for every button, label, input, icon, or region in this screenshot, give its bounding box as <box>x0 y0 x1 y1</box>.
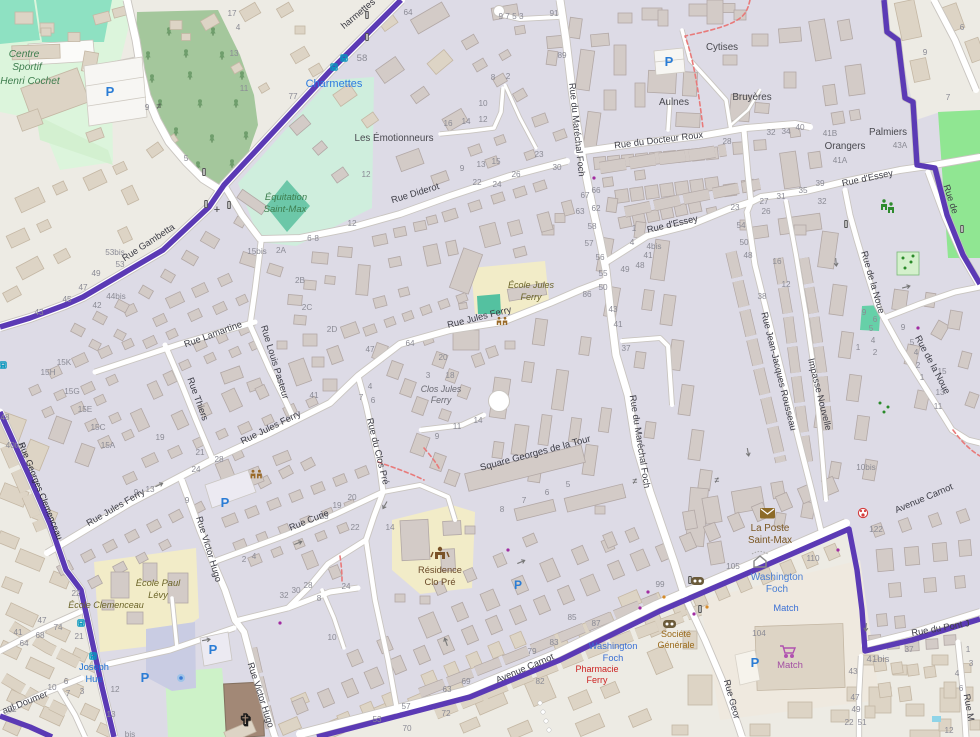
svg-text:23: 23 <box>730 203 740 212</box>
svg-text:43: 43 <box>608 305 618 314</box>
svg-text:15E: 15E <box>78 405 93 414</box>
svg-text:47: 47 <box>78 283 88 292</box>
svg-text:4bis: 4bis <box>646 242 661 251</box>
svg-text:41: 41 <box>309 391 319 400</box>
svg-text:58: 58 <box>357 53 368 64</box>
svg-text:82: 82 <box>535 677 545 686</box>
svg-text:15: 15 <box>491 157 501 166</box>
svg-text:3: 3 <box>426 371 431 380</box>
svg-text:2B: 2B <box>295 276 306 285</box>
svg-text:7: 7 <box>522 496 527 505</box>
svg-text:86: 86 <box>582 290 592 299</box>
svg-text:50: 50 <box>598 283 608 292</box>
svg-text:Société: Société <box>661 629 691 639</box>
svg-text:P: P <box>665 54 674 69</box>
svg-text:École Paul: École Paul <box>136 578 181 588</box>
svg-text:26: 26 <box>511 170 521 179</box>
svg-text:Lévy: Lévy <box>148 590 169 600</box>
svg-text:42: 42 <box>92 301 102 310</box>
svg-text:41bis: 41bis <box>867 654 890 665</box>
svg-text:10: 10 <box>327 633 337 642</box>
svg-text:89: 89 <box>557 51 567 60</box>
svg-text:Foch: Foch <box>603 653 624 663</box>
svg-text:4: 4 <box>955 669 960 678</box>
svg-text:66: 66 <box>591 186 601 195</box>
svg-text:56: 56 <box>595 253 605 262</box>
svg-text:10: 10 <box>47 683 57 692</box>
svg-text:12: 12 <box>110 685 120 694</box>
svg-text:64: 64 <box>405 339 415 348</box>
svg-text:Aulnes: Aulnes <box>659 97 689 108</box>
svg-text:15H: 15H <box>40 368 55 377</box>
svg-text:2C: 2C <box>302 303 313 312</box>
svg-text:41A: 41A <box>833 156 848 165</box>
svg-text:47: 47 <box>37 616 47 625</box>
svg-text:57: 57 <box>584 239 594 248</box>
svg-text:1: 1 <box>856 343 861 352</box>
svg-text:14: 14 <box>385 523 395 532</box>
svg-text:28: 28 <box>722 137 732 146</box>
svg-text:Ferry: Ferry <box>431 395 452 405</box>
svg-text:16: 16 <box>443 119 453 128</box>
svg-text:Résidence: Résidence <box>418 565 462 575</box>
svg-text:4: 4 <box>630 238 635 247</box>
svg-text:1: 1 <box>632 224 637 233</box>
svg-text:Foch: Foch <box>766 584 788 595</box>
svg-text:Washington: Washington <box>589 641 638 651</box>
svg-text:48: 48 <box>0 413 10 422</box>
svg-text:39: 39 <box>815 179 825 188</box>
svg-text:P: P <box>751 655 760 670</box>
svg-text:38: 38 <box>757 292 767 301</box>
svg-text:8: 8 <box>500 505 505 514</box>
svg-text:62: 62 <box>591 204 601 213</box>
svg-text:≠: ≠ <box>715 475 720 485</box>
svg-text:École Jules: École Jules <box>508 280 555 290</box>
svg-text:≠: ≠ <box>157 101 162 111</box>
svg-text:20: 20 <box>438 353 448 362</box>
svg-text:48: 48 <box>743 251 753 260</box>
svg-text:6: 6 <box>545 488 550 497</box>
svg-text:2A: 2A <box>276 246 287 255</box>
svg-text:Centre: Centre <box>9 49 40 60</box>
svg-text:77: 77 <box>288 92 298 101</box>
svg-text:Hue: Hue <box>85 674 102 684</box>
svg-text:4: 4 <box>236 23 241 32</box>
svg-text:50: 50 <box>739 238 749 247</box>
svg-text:Joseph: Joseph <box>79 662 109 672</box>
svg-text:2: 2 <box>242 555 247 564</box>
svg-text:P: P <box>106 84 115 99</box>
svg-text:91: 91 <box>549 9 559 18</box>
svg-text:Clos Jules: Clos Jules <box>421 384 462 394</box>
svg-text:Henri Cochet: Henri Cochet <box>0 76 61 87</box>
svg-text:11: 11 <box>934 402 943 411</box>
svg-text:12: 12 <box>944 726 954 735</box>
svg-text:Cytises: Cytises <box>706 42 738 53</box>
svg-text:14: 14 <box>473 416 483 425</box>
svg-text:Les Émotionneurs: Les Émotionneurs <box>355 133 434 144</box>
svg-text:41: 41 <box>13 628 23 637</box>
svg-text:15A: 15A <box>101 441 116 450</box>
svg-text:49: 49 <box>851 705 861 714</box>
svg-text:P: P <box>514 578 522 592</box>
svg-text:Washington: Washington <box>751 572 803 583</box>
svg-text:12: 12 <box>347 219 357 228</box>
svg-text:Ferry: Ferry <box>521 292 542 302</box>
svg-text:63: 63 <box>575 207 585 216</box>
svg-text:15K: 15K <box>57 358 72 367</box>
svg-text:70: 70 <box>402 724 412 733</box>
svg-text:Match: Match <box>777 660 803 671</box>
svg-text:55: 55 <box>598 269 608 278</box>
svg-text:19: 19 <box>155 433 165 442</box>
svg-text:10: 10 <box>478 99 488 108</box>
svg-text:37: 37 <box>621 344 631 353</box>
svg-text:11: 11 <box>453 422 462 431</box>
svg-text:4: 4 <box>871 336 876 345</box>
svg-text:≠: ≠ <box>633 476 638 486</box>
svg-text:30: 30 <box>291 586 301 595</box>
svg-text:9: 9 <box>460 164 465 173</box>
svg-text:72: 72 <box>441 709 451 718</box>
svg-text:49: 49 <box>620 265 630 274</box>
svg-text:47: 47 <box>365 345 375 354</box>
svg-text:41B: 41B <box>823 129 838 138</box>
svg-text:Bruyères: Bruyères <box>732 92 771 103</box>
svg-text:1: 1 <box>920 373 925 382</box>
svg-text:3: 3 <box>969 659 974 668</box>
svg-text:2: 2 <box>506 72 511 81</box>
svg-text:Sportif: Sportif <box>12 62 43 73</box>
svg-text:4: 4 <box>368 382 373 391</box>
svg-text:5: 5 <box>869 324 874 333</box>
svg-text:21: 21 <box>195 448 205 457</box>
svg-text:30: 30 <box>552 163 562 172</box>
svg-text:24: 24 <box>492 180 502 189</box>
svg-text:99: 99 <box>655 580 665 589</box>
svg-text:6: 6 <box>371 396 376 405</box>
svg-text:41: 41 <box>643 251 653 260</box>
svg-text:17: 17 <box>227 9 237 18</box>
svg-text:16: 16 <box>772 257 782 266</box>
svg-text:22: 22 <box>71 589 81 598</box>
svg-text:74: 74 <box>53 623 63 632</box>
svg-text:3: 3 <box>80 687 85 696</box>
svg-text:105: 105 <box>726 562 740 571</box>
svg-text:6: 6 <box>873 315 878 324</box>
svg-text:9: 9 <box>862 308 867 317</box>
svg-text:P: P <box>221 495 230 510</box>
svg-text:40: 40 <box>795 123 805 132</box>
svg-text:13: 13 <box>476 160 486 169</box>
svg-text:11: 11 <box>240 84 249 93</box>
svg-text:51: 51 <box>857 718 867 727</box>
svg-text:6: 6 <box>960 23 965 32</box>
svg-text:18: 18 <box>445 371 455 380</box>
svg-text:Saint-Max: Saint-Max <box>264 204 308 215</box>
svg-text:26: 26 <box>761 207 771 216</box>
svg-text:Clo Pré: Clo Pré <box>424 577 455 587</box>
svg-text:9: 9 <box>923 48 928 57</box>
svg-text:22: 22 <box>472 178 482 187</box>
svg-text:4: 4 <box>252 552 257 561</box>
svg-text:12: 12 <box>361 170 371 179</box>
svg-text:63: 63 <box>442 685 452 694</box>
svg-text:83: 83 <box>549 638 559 647</box>
svg-text:22: 22 <box>350 523 360 532</box>
svg-text:7: 7 <box>359 393 364 402</box>
svg-text:6: 6 <box>959 684 964 693</box>
svg-text:13: 13 <box>106 710 116 719</box>
svg-text:49: 49 <box>91 269 101 278</box>
svg-text:12: 12 <box>478 115 488 124</box>
svg-text:9: 9 <box>435 432 440 441</box>
svg-text:32: 32 <box>766 128 776 137</box>
svg-text:47: 47 <box>850 693 860 702</box>
svg-text:6: 6 <box>64 677 69 686</box>
svg-text:2: 2 <box>916 361 921 370</box>
svg-text:67: 67 <box>580 191 590 200</box>
svg-text:Match: Match <box>773 603 798 613</box>
svg-text:2: 2 <box>873 348 878 357</box>
svg-text:Équitation: Équitation <box>265 192 307 203</box>
svg-text:23: 23 <box>534 150 544 159</box>
svg-text:57: 57 <box>401 702 411 711</box>
svg-text:Orangers: Orangers <box>825 141 866 152</box>
svg-text:Charmettes: Charmettes <box>306 78 363 90</box>
svg-text:✞: ✞ <box>239 711 253 730</box>
svg-text:45: 45 <box>62 295 72 304</box>
svg-text:5: 5 <box>184 154 189 163</box>
svg-text:32: 32 <box>279 591 289 600</box>
svg-text:41: 41 <box>613 320 623 329</box>
svg-text:64: 64 <box>403 8 413 17</box>
svg-text:24: 24 <box>191 465 201 474</box>
svg-text:27: 27 <box>759 197 769 206</box>
svg-text:21: 21 <box>74 632 84 641</box>
svg-text:9: 9 <box>901 323 906 332</box>
svg-text:48: 48 <box>635 261 645 270</box>
svg-text:43A: 43A <box>893 141 908 150</box>
svg-text:110: 110 <box>806 554 819 563</box>
svg-text:53: 53 <box>372 715 382 724</box>
svg-text:12: 12 <box>781 280 791 289</box>
svg-text:1: 1 <box>966 645 971 654</box>
svg-text:13: 13 <box>229 49 239 58</box>
svg-text:22: 22 <box>844 718 854 727</box>
svg-text:Palmiers: Palmiers <box>869 127 907 138</box>
svg-text:7: 7 <box>66 689 71 698</box>
svg-text:35: 35 <box>798 186 808 195</box>
svg-text:15C: 15C <box>90 423 105 432</box>
svg-text:5: 5 <box>566 480 571 489</box>
svg-text:54: 54 <box>736 221 746 230</box>
svg-text:Générale: Générale <box>657 640 694 650</box>
svg-text:9: 9 <box>145 103 150 112</box>
svg-text:2D: 2D <box>327 325 338 334</box>
svg-text:43: 43 <box>34 308 44 317</box>
svg-text:68: 68 <box>35 631 45 640</box>
svg-text:32: 32 <box>817 197 827 206</box>
svg-text:École Clemenceau: École Clemenceau <box>68 600 144 610</box>
svg-text:+: + <box>214 204 220 216</box>
svg-text:44bis: 44bis <box>106 292 126 301</box>
svg-text:24: 24 <box>341 582 351 591</box>
svg-text:37: 37 <box>904 645 914 654</box>
svg-text:9: 9 <box>185 496 190 505</box>
svg-text:15bis: 15bis <box>247 247 267 256</box>
svg-text:43: 43 <box>848 667 858 676</box>
svg-text:Saint-Max: Saint-Max <box>748 535 792 546</box>
svg-text:28: 28 <box>303 581 313 590</box>
svg-text:19: 19 <box>332 501 342 510</box>
svg-text:20: 20 <box>347 493 357 502</box>
svg-text:La Poste: La Poste <box>751 523 790 534</box>
svg-text:Ferry: Ferry <box>587 675 608 685</box>
svg-text:87: 87 <box>591 619 601 628</box>
svg-text:9 7 5 3: 9 7 5 3 <box>498 12 523 21</box>
svg-text:64: 64 <box>19 639 29 648</box>
svg-text:13: 13 <box>145 485 155 494</box>
svg-text:4: 4 <box>914 348 919 357</box>
svg-text:10bis: 10bis <box>856 463 876 472</box>
svg-text:8: 8 <box>491 73 496 82</box>
svg-text:28: 28 <box>214 455 224 464</box>
svg-text:122: 122 <box>869 525 883 534</box>
svg-text:34: 34 <box>781 127 791 136</box>
svg-text:P: P <box>209 642 218 657</box>
svg-text:104: 104 <box>752 629 766 638</box>
svg-text:P: P <box>141 670 150 685</box>
svg-text:14: 14 <box>461 117 471 126</box>
svg-text:8: 8 <box>317 594 322 603</box>
svg-text:15G: 15G <box>64 387 79 396</box>
svg-text:69: 69 <box>461 677 471 686</box>
svg-text:7: 7 <box>946 93 951 102</box>
svg-text:58: 58 <box>587 222 597 231</box>
svg-text:31: 31 <box>776 192 786 201</box>
svg-text:bis: bis <box>125 730 135 737</box>
svg-text:6-8: 6-8 <box>307 234 319 243</box>
svg-text:Pharmacie: Pharmacie <box>575 664 618 674</box>
svg-text:85: 85 <box>567 613 577 622</box>
svg-text:79: 79 <box>527 647 537 656</box>
